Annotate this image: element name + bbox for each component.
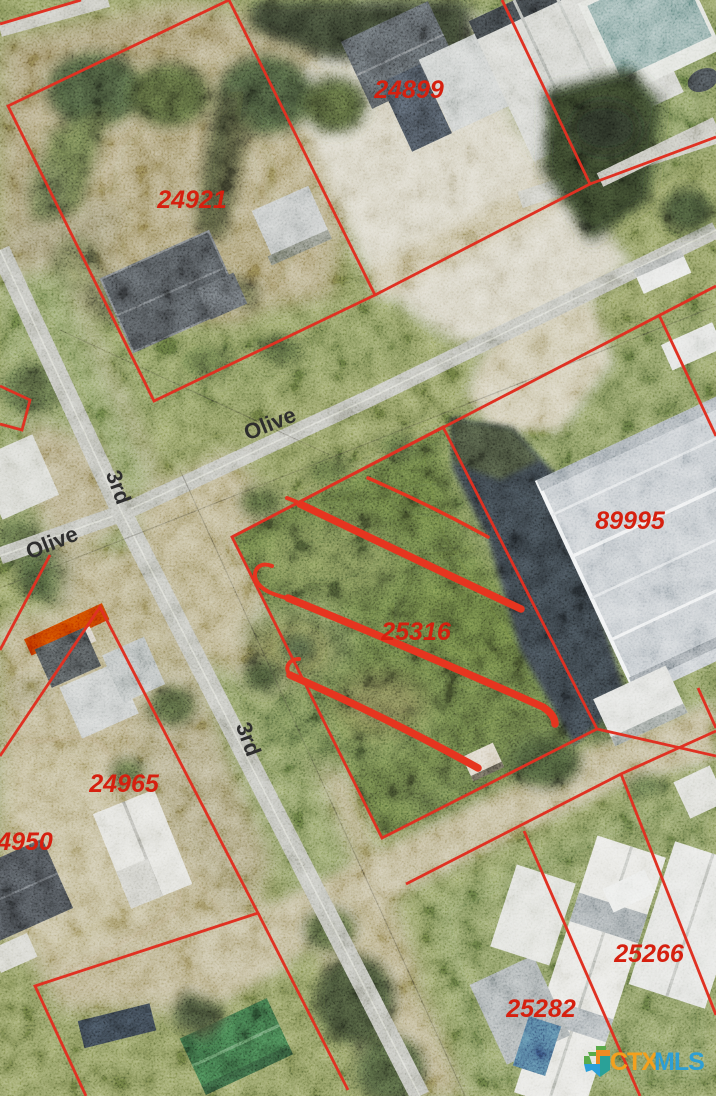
svg-text:4950: 4950	[0, 828, 53, 856]
svg-text:24965: 24965	[88, 770, 160, 798]
svg-text:CTX: CTX	[610, 1048, 658, 1076]
svg-text:25316: 25316	[380, 618, 452, 646]
svg-text:89995: 89995	[595, 507, 666, 535]
svg-text:MLS: MLS	[654, 1048, 704, 1076]
svg-text:25266: 25266	[613, 940, 685, 968]
svg-text:25282: 25282	[505, 995, 576, 1023]
svg-text:24921: 24921	[156, 186, 227, 214]
svg-text:24899: 24899	[373, 76, 444, 104]
